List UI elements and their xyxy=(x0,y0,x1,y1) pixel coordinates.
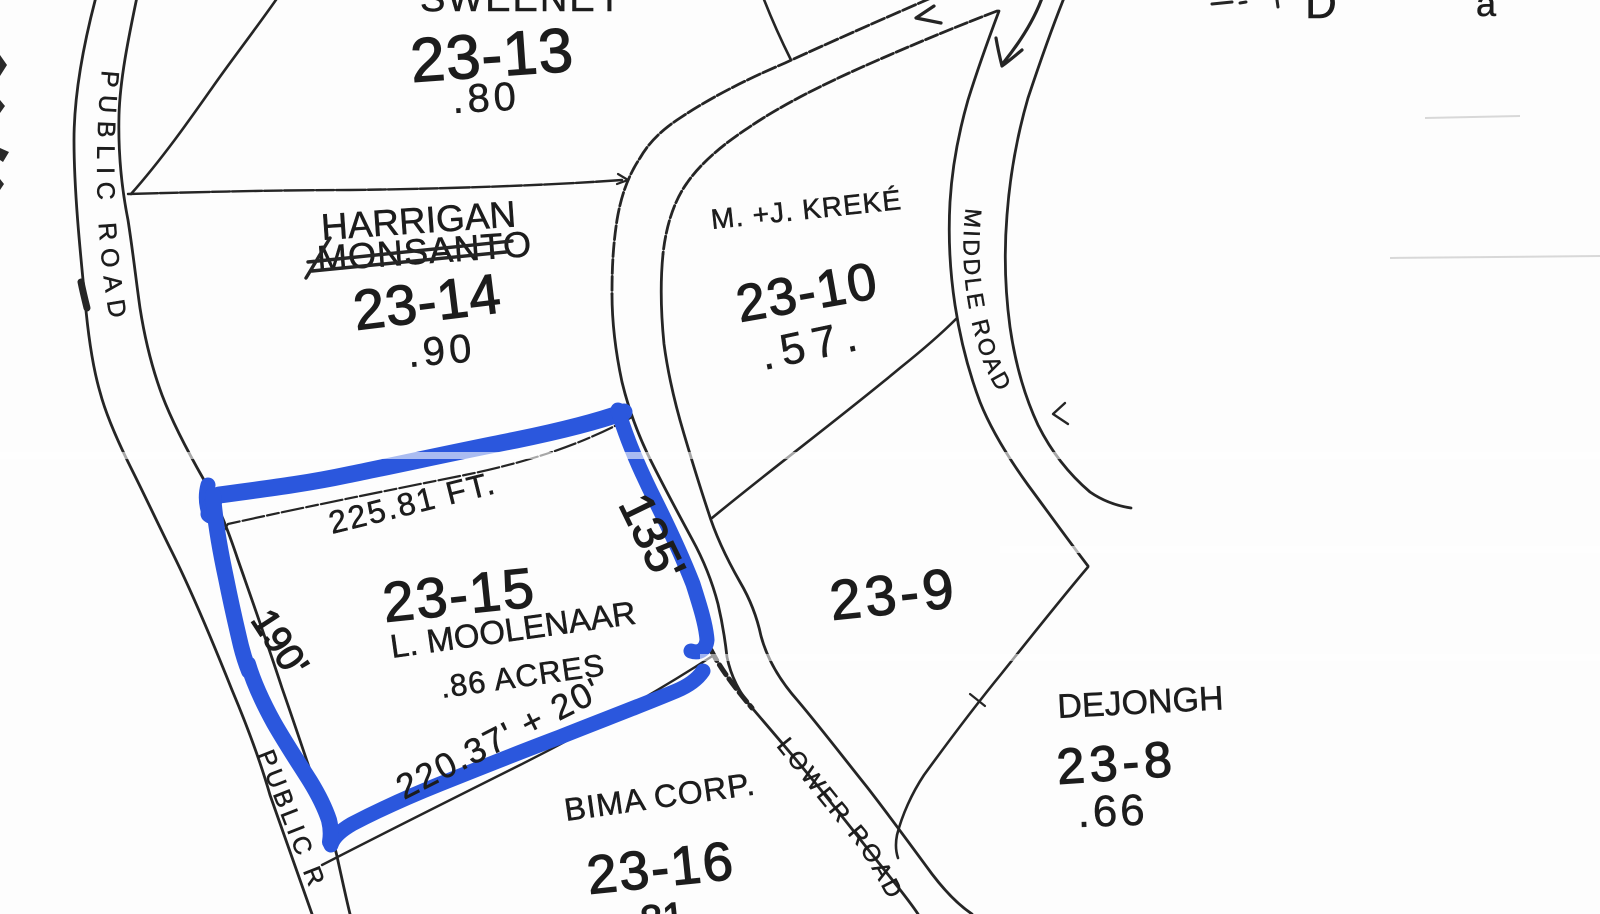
svg-text:SWEENEY: SWEENEY xyxy=(420,0,624,20)
svg-text:a: a xyxy=(1476,0,1497,24)
svg-text:23-8: 23-8 xyxy=(1055,731,1179,795)
svg-text:.66: .66 xyxy=(1077,786,1149,837)
svg-text:23-9: 23-9 xyxy=(827,556,961,632)
svg-text:D: D xyxy=(1305,0,1337,28)
svg-text:.80: .80 xyxy=(451,75,521,122)
svg-text:.90: .90 xyxy=(406,326,477,376)
svg-text:81: 81 xyxy=(638,895,687,914)
